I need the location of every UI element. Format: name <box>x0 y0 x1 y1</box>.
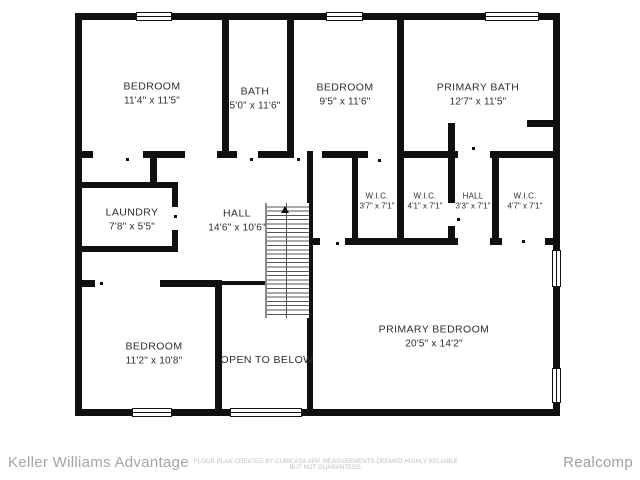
room-dims: 7'8" x 5'5" <box>106 220 159 233</box>
door-marker <box>457 218 460 221</box>
window <box>230 408 302 417</box>
wall-divider-seg <box>217 151 237 158</box>
room-name: HALL <box>456 192 491 202</box>
wall-wicrow-bottom-seg <box>345 238 458 245</box>
room-label-bedroom-2: BEDROOM 9'5" x 11'6" <box>316 82 373 109</box>
window <box>136 12 172 21</box>
wall-divider-seg <box>143 151 185 158</box>
room-label-wic-2: W.I.C. 4'1" x 7'1" <box>408 192 443 213</box>
room-name: W.I.C. <box>360 192 395 202</box>
door-marker <box>174 215 177 218</box>
wall-bedroom3-top-seg <box>160 280 222 287</box>
wall-hall2-left-upper <box>448 158 455 203</box>
wall-wicrow-bottom-seg <box>490 238 502 245</box>
wall-divider-seg <box>490 151 560 158</box>
window <box>552 368 561 403</box>
wall-bedroom2-primarybath <box>397 20 404 245</box>
room-dims: 14'6" x 10'6" <box>208 221 265 234</box>
room-label-primary-bedroom: PRIMARY BEDROOM 20'5" x 14'2" <box>379 324 490 351</box>
wall-primarybath-interior <box>448 123 455 151</box>
door-marker <box>126 158 129 161</box>
wall-bath-bedroom2 <box>287 20 294 151</box>
wall-divider-seg <box>322 151 368 158</box>
wall-laundry-stub <box>150 158 157 182</box>
wall-exterior-left <box>75 13 82 416</box>
wall-bedroom3-right <box>215 280 222 409</box>
room-name: OPEN TO BELOW <box>221 354 314 368</box>
window <box>485 12 539 21</box>
door-marker <box>250 158 253 161</box>
wall-stair-halfwall <box>222 281 265 285</box>
room-dims: 3'3" x 7'1" <box>456 202 491 212</box>
wall-bedroom1-bath <box>222 20 229 151</box>
wall-laundry-bottom <box>82 246 178 252</box>
door-marker <box>100 282 103 285</box>
room-label-wic-1: W.I.C. 3'7" x 7'1" <box>360 192 395 213</box>
room-dims: 9'5" x 11'6" <box>316 95 373 108</box>
footer-brand-logo: Realcomp <box>563 454 633 471</box>
room-dims: 20'5" x 14'2" <box>379 337 490 350</box>
wall-divider-seg <box>75 151 93 158</box>
wall-wicrow-bottom-seg <box>313 238 320 245</box>
window <box>552 250 561 287</box>
room-label-hall-2: HALL 3'3" x 7'1" <box>456 192 491 213</box>
window <box>326 12 363 21</box>
room-name: BEDROOM <box>123 81 180 95</box>
door-marker <box>522 240 525 243</box>
room-label-laundry: LAUNDRY 7'8" x 5'5" <box>106 207 159 234</box>
room-label-bath: BATH 5'0" x 11'6" <box>230 86 281 113</box>
wall-hall2-right <box>492 158 499 245</box>
staircase-divider <box>286 203 287 318</box>
room-name: LAUNDRY <box>106 207 159 221</box>
wall-bedroom3-top-seg <box>82 280 95 287</box>
room-name: PRIMARY BATH <box>437 82 519 96</box>
room-dims: 4'1" x 7'1" <box>408 202 443 212</box>
door-marker <box>336 242 339 245</box>
wall-laundry-top <box>82 182 178 188</box>
wall-primarybath-alcove <box>527 120 553 127</box>
staircase-up-arrow-icon <box>281 206 289 213</box>
wall-divider-seg <box>258 151 294 158</box>
room-label-bedroom-3: BEDROOM 11'2" x 10'8" <box>125 341 182 368</box>
door-marker <box>378 159 381 162</box>
room-name: PRIMARY BEDROOM <box>379 324 490 338</box>
room-dims: 4'7" x 7'1" <box>508 202 543 212</box>
room-dims: 12'7" x 11'5" <box>437 95 519 108</box>
room-label-open-to-below: OPEN TO BELOW <box>221 354 314 368</box>
room-name: BEDROOM <box>125 341 182 355</box>
room-dims: 3'7" x 7'1" <box>360 202 395 212</box>
floor-plan: BEDROOM 11'4" x 11'5" BATH 5'0" x 11'6" … <box>0 0 640 480</box>
room-dims: 11'2" x 10'8" <box>125 354 182 367</box>
room-name: W.I.C. <box>408 192 443 202</box>
room-label-wic-3: W.I.C. 4'7" x 7'1" <box>508 192 543 213</box>
room-label-primary-bath: PRIMARY BATH 12'7" x 11'5" <box>437 82 519 109</box>
room-label-bedroom-1: BEDROOM 11'4" x 11'5" <box>123 81 180 108</box>
wall-exterior-right <box>553 13 560 416</box>
door-marker <box>472 147 475 150</box>
room-name: BATH <box>230 86 281 100</box>
room-name: HALL <box>208 208 265 222</box>
wall-divider-seg <box>397 151 458 158</box>
wall-laundry-right-upper <box>172 182 178 207</box>
room-dims: 11'4" x 11'5" <box>123 94 180 107</box>
footer-agency-name: Keller Williams Advantage <box>8 454 189 471</box>
staircase <box>265 203 309 318</box>
room-dims: 5'0" x 11'6" <box>230 99 281 112</box>
footer-disclaimer: FLOOR PLAN CREATED BY CUBICASA APP. MEAS… <box>188 459 464 471</box>
wall-wic1-left <box>352 158 358 245</box>
room-name: BEDROOM <box>316 82 373 96</box>
window <box>132 408 172 417</box>
wall-wicrow-bottom-seg <box>545 238 560 245</box>
door-marker <box>297 158 300 161</box>
room-label-hall-main: HALL 14'6" x 10'6" <box>208 208 265 235</box>
room-name: W.I.C. <box>508 192 543 202</box>
